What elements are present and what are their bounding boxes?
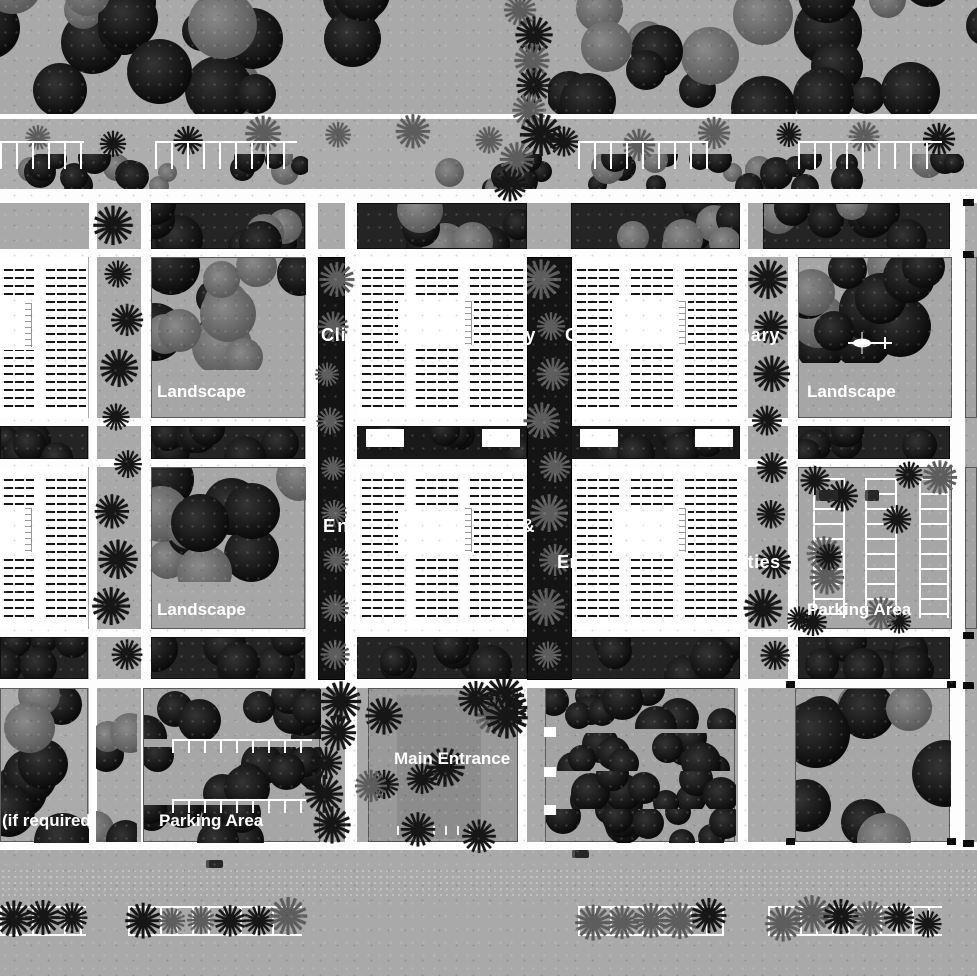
tree-icon: [224, 483, 280, 539]
palm-tree-icon: ✺: [90, 200, 135, 254]
tree-icon: [224, 436, 266, 459]
tree-icon: [707, 708, 736, 729]
palm-tree-icon: ✺: [109, 300, 146, 344]
tree-row: [546, 809, 736, 843]
tree-icon: [669, 829, 695, 843]
tree-icon: [652, 733, 683, 763]
tree-row: [144, 747, 321, 799]
tree-icon: [733, 0, 793, 45]
tree-cluster: [796, 689, 951, 843]
street-parking-comb: [155, 141, 297, 169]
tree-icon: [178, 699, 221, 739]
palm-tree-icon: ✺: [750, 402, 784, 443]
tree-row: [546, 689, 736, 729]
tree-icon: [886, 219, 927, 249]
tree-icon: [452, 222, 493, 249]
tree-icon: [151, 637, 178, 672]
palm-tree-icon: ✺: [758, 637, 792, 677]
gate-strip: [571, 426, 740, 459]
tree-strip: [151, 203, 305, 249]
palm-tree-icon: ✺: [54, 898, 89, 940]
forest-cluster-right: [548, 0, 977, 115]
tree-icon: [171, 494, 229, 552]
building-clinic-left: [357, 257, 527, 418]
tree-cluster: [152, 258, 306, 370]
tree-icon: [646, 175, 666, 189]
palm-tree-icon: ✺: [319, 453, 347, 486]
tree-icon: [617, 435, 655, 459]
tree-row: [144, 689, 321, 739]
site-plan: ✺✺✺✺✺✺✺✺ ✺✺✺✺✺✺✺✺✺✺✺✺✺ ✺✺✺✺✺✺✺✺✺ ✺✺✺✺✺✺✺…: [0, 0, 977, 976]
tree-icon: [217, 642, 260, 679]
tree-icon: [665, 809, 691, 825]
palm-tree-icon: ✺: [751, 350, 793, 400]
palm-tree-icon: ✺: [460, 814, 499, 860]
landscape-block-w: Landscape: [151, 467, 305, 629]
tree-icon: [617, 221, 649, 249]
tree-icon: [0, 0, 42, 14]
palm-tree-icon: ✺: [741, 584, 785, 637]
edge-sliver: [965, 257, 977, 418]
tree-strip: [798, 637, 950, 679]
palm-tree-icon: ✺: [102, 257, 133, 294]
courtyard: [612, 298, 688, 348]
tree-row: [546, 733, 736, 771]
tree-icon: [276, 468, 306, 501]
gate-strip: [357, 426, 527, 459]
tree-rows-block: [545, 688, 735, 842]
parking-stalls: [172, 739, 312, 753]
tree-icon: [626, 50, 666, 90]
tree-icon: [144, 747, 174, 772]
tree-icon: [55, 637, 88, 658]
parking-block-e: Parking Area ✺✺✺✺✺✺✺✺✺✺✺✺: [798, 467, 952, 629]
palm-column: ✺✺✺✺✺✺✺✺✺: [748, 257, 790, 680]
helicopter-icon: [847, 330, 893, 356]
palm-tree-icon: ✺: [535, 309, 568, 348]
palm-tree-icon: ✺: [491, 164, 529, 209]
expansion-block: (if required: [0, 688, 88, 842]
tree-icon: [277, 258, 306, 296]
tree-cluster: [152, 468, 306, 582]
tree-icon: [690, 637, 734, 679]
tree-icon: [608, 748, 639, 771]
tree-icon: [597, 637, 632, 669]
tree-strip: [571, 637, 740, 679]
tree-strip: [151, 426, 305, 459]
palm-tree-icon: ✺: [112, 446, 144, 484]
landscape-block-nw: Landscape: [151, 257, 305, 418]
palm-tree-icon: ✺: [534, 353, 572, 398]
car-icon: [206, 860, 223, 868]
edge-sliver: [965, 467, 977, 629]
building-clinic-right: [572, 257, 740, 418]
tree-icon: [20, 647, 57, 679]
palm-tree-icon: ✺: [893, 458, 924, 495]
palm-tree-icon: ✺: [920, 456, 959, 503]
tree-icon: [236, 258, 277, 287]
tree-icon: [890, 646, 931, 679]
tree-icon: [225, 338, 263, 370]
palm-tree-icon: ✺: [393, 110, 432, 157]
building-edge-west-1: [0, 257, 88, 418]
tree-strip: [151, 637, 305, 679]
palm-tree-icon: ✺: [319, 590, 351, 628]
tree-icon: [243, 691, 275, 723]
tree-icon: [681, 742, 721, 771]
tree-icon: [881, 62, 940, 115]
palm-tree-icon: ✺: [353, 766, 390, 810]
tree-icon: [261, 426, 299, 459]
tree-icon: [380, 646, 410, 676]
tree-icon: [268, 753, 305, 790]
palm-tree-icon: ✺: [314, 404, 345, 441]
label-landscape-w: Landscape: [157, 600, 246, 620]
street-band: ✺✺✺✺✺✺✺✺✺✺✺✺✺: [0, 119, 977, 189]
label-if-required: (if required: [2, 811, 91, 831]
palm-tree-icon: ✺: [89, 582, 133, 634]
label-landscape-ne: Landscape: [807, 382, 896, 402]
building-edge-west-2: [0, 467, 88, 629]
palm-tree-icon: ✺: [100, 400, 131, 437]
palm-tree-icon: ✺: [313, 359, 341, 392]
street-parking-boxed: ✺✺✺✺✺✺: [768, 906, 942, 936]
courtyard: [398, 505, 474, 555]
palm-tree-icon: ✺: [456, 676, 496, 724]
tree-icon: [503, 209, 527, 240]
palm-tree-icon: ✺: [97, 344, 141, 396]
palm-tree-icon: ✺: [532, 638, 563, 675]
landscape-block-ne: Landscape: [798, 257, 952, 418]
tree-icon: [731, 76, 796, 115]
palm-tree-icon: ✺: [157, 905, 187, 941]
palm-strip-dark: ✺✺✺✺✺✺✺✺✺: [527, 257, 572, 680]
tree-icon: [152, 258, 200, 295]
tree-icon: [435, 158, 464, 187]
tree-icon: [158, 309, 201, 352]
tree-icon: [903, 0, 953, 7]
palm-tree-icon: ✺: [754, 448, 789, 490]
tree-icon: [681, 27, 739, 85]
tree-row: [546, 771, 736, 809]
palm-tree-icon: ✺: [98, 128, 128, 164]
tree-icon: [632, 809, 664, 839]
tree-icon: [203, 261, 240, 298]
tree-strip: [0, 426, 88, 459]
tree-strip: [0, 637, 88, 679]
tree-icon: [709, 227, 740, 249]
tree-icon: [886, 689, 932, 731]
street-parking-comb: [578, 141, 708, 169]
forest-cluster-left: [0, 0, 395, 115]
palm-tree-icon: ✺: [881, 502, 914, 541]
courtyard: [0, 505, 34, 555]
tree-icon: [869, 0, 906, 18]
tree-icon: [703, 777, 736, 809]
forest-band: [0, 0, 977, 118]
tree-cluster: [96, 688, 137, 842]
palm-tree-icon: ✺: [882, 899, 916, 940]
tree-icon: [581, 21, 632, 72]
tree-cluster-block-se: [795, 688, 950, 842]
palm-tree-icon: ✺: [363, 693, 406, 744]
palm-column-top: ✺✺✺✺✺✺✺✺: [492, 0, 562, 198]
tree-strip: [763, 203, 950, 249]
courtyard: [612, 505, 688, 555]
tree-icon: [796, 779, 831, 832]
tree-icon: [127, 39, 192, 104]
tree-icon: [628, 772, 660, 804]
street-parking-boxed: ✺✺✺✺✺: [578, 906, 724, 936]
main-entrance-block: Main Entrance ✺✺✺✺✺✺✺✺✺✺✺✺: [368, 688, 518, 842]
palm-tree-icon: ✺: [745, 254, 790, 308]
car-icon: [572, 850, 589, 858]
parking-block-sw: Parking Area: [143, 688, 320, 842]
street-parking-boxed: ✺✺✺: [0, 906, 86, 936]
label-parking-e: Parking Area: [807, 600, 911, 620]
palm-tree-icon: ✺: [912, 907, 943, 944]
green-strip: [96, 688, 137, 842]
palm-tree-icon: ✺: [266, 892, 310, 944]
street-parking-comb: [0, 141, 84, 169]
palm-tree-icon: ✺: [109, 635, 144, 677]
street-parking-boxed: ✺✺✺✺✺✺: [128, 906, 302, 936]
label-parking-sw: Parking Area: [159, 811, 263, 831]
label-main-entrance: Main Entrance: [394, 749, 510, 769]
palm-tree-icon: ✺: [321, 545, 350, 580]
palm-strip-dark: ✺✺✺✺✺✺✺✺✺: [318, 257, 345, 680]
label-landscape-nw: Landscape: [157, 382, 246, 402]
palm-column: ✺✺✺✺✺: [312, 688, 358, 842]
tree-icon: [568, 745, 596, 771]
palm-column: ✺✺✺✺✺✺✺✺✺✺: [96, 203, 140, 680]
tree-icon: [4, 702, 55, 753]
tree-icon: [966, 5, 977, 46]
palm-tree-icon: ✺: [755, 497, 788, 536]
tree-icon: [805, 648, 839, 679]
building-entrance: [357, 467, 527, 629]
car-icon: [865, 490, 879, 501]
car-icon: [816, 490, 838, 501]
palm-tree-icon: ✺: [689, 893, 729, 941]
palm-tree-icon: ✺: [311, 802, 354, 853]
palm-tree-icon: ✺: [521, 397, 563, 447]
palm-tree-icon: ✺: [398, 808, 437, 855]
courtyard: [398, 298, 474, 348]
palm-tree-icon: ✺: [317, 257, 357, 305]
palm-tree-icon: ✺: [524, 583, 568, 635]
tree-icon: [560, 73, 616, 115]
tree-strip: [571, 203, 740, 249]
building-emergency: [572, 467, 740, 629]
street-parking-comb: [798, 141, 942, 169]
courtyard: [0, 300, 34, 350]
palm-tree-icon: ✺: [814, 541, 844, 577]
palm-tree-icon: ✺: [323, 120, 352, 155]
tree-icon: [912, 740, 951, 807]
